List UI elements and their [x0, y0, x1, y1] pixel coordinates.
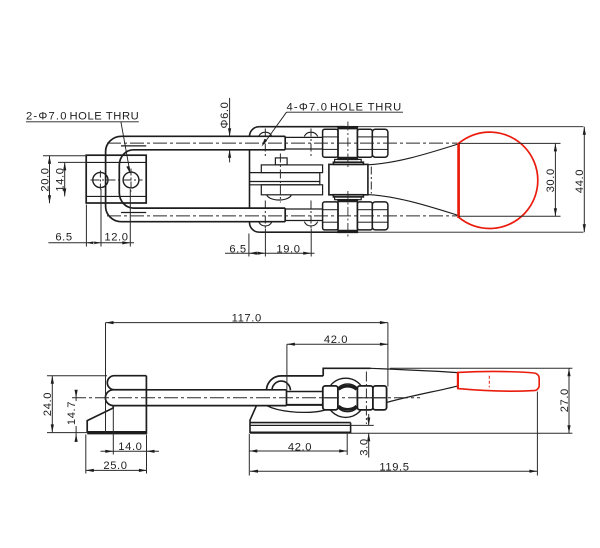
svg-text:3.0: 3.0: [359, 438, 371, 455]
svg-text:44.0: 44.0: [574, 169, 586, 193]
svg-text:6.5: 6.5: [55, 232, 72, 244]
svg-text:14.0: 14.0: [55, 167, 67, 191]
svg-text:27.0: 27.0: [559, 388, 571, 412]
svg-text:25.0: 25.0: [103, 460, 127, 472]
svg-text:12.0: 12.0: [104, 232, 128, 244]
svg-text:HOLE THRU: HOLE THRU: [330, 101, 402, 113]
svg-text:42.0: 42.0: [288, 441, 312, 453]
svg-text:14.7: 14.7: [66, 401, 78, 425]
svg-text:14.0: 14.0: [118, 441, 142, 453]
svg-text:24.0: 24.0: [42, 392, 54, 416]
svg-text:19.0: 19.0: [276, 243, 300, 255]
svg-text:4-Φ7.0: 4-Φ7.0: [287, 101, 329, 113]
svg-text:2-Φ7.0: 2-Φ7.0: [26, 110, 68, 122]
svg-text:6.5: 6.5: [229, 243, 246, 255]
svg-text:42.0: 42.0: [324, 334, 348, 346]
svg-text:30.0: 30.0: [545, 168, 557, 192]
svg-text:HOLE THRU: HOLE THRU: [70, 110, 140, 122]
svg-text:20.0: 20.0: [39, 167, 51, 191]
svg-text:119.5: 119.5: [379, 461, 409, 473]
svg-text:117.0: 117.0: [232, 312, 262, 324]
